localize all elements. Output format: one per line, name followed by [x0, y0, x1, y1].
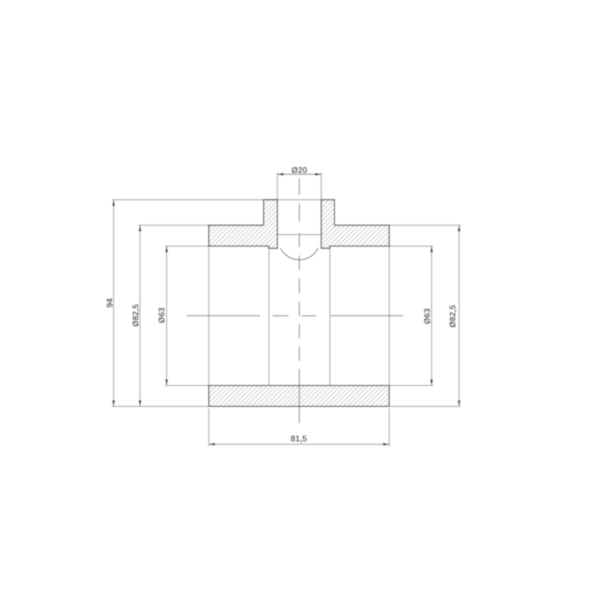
svg-text:94: 94 — [105, 298, 115, 308]
svg-text:Ø63: Ø63 — [156, 307, 166, 323]
svg-text:Ø20: Ø20 — [291, 165, 307, 175]
svg-text:Ø82,5: Ø82,5 — [448, 305, 458, 328]
svg-text:Ø63: Ø63 — [422, 308, 432, 324]
svg-text:Ø82,5: Ø82,5 — [131, 304, 141, 327]
svg-text:81,5: 81,5 — [291, 434, 308, 444]
